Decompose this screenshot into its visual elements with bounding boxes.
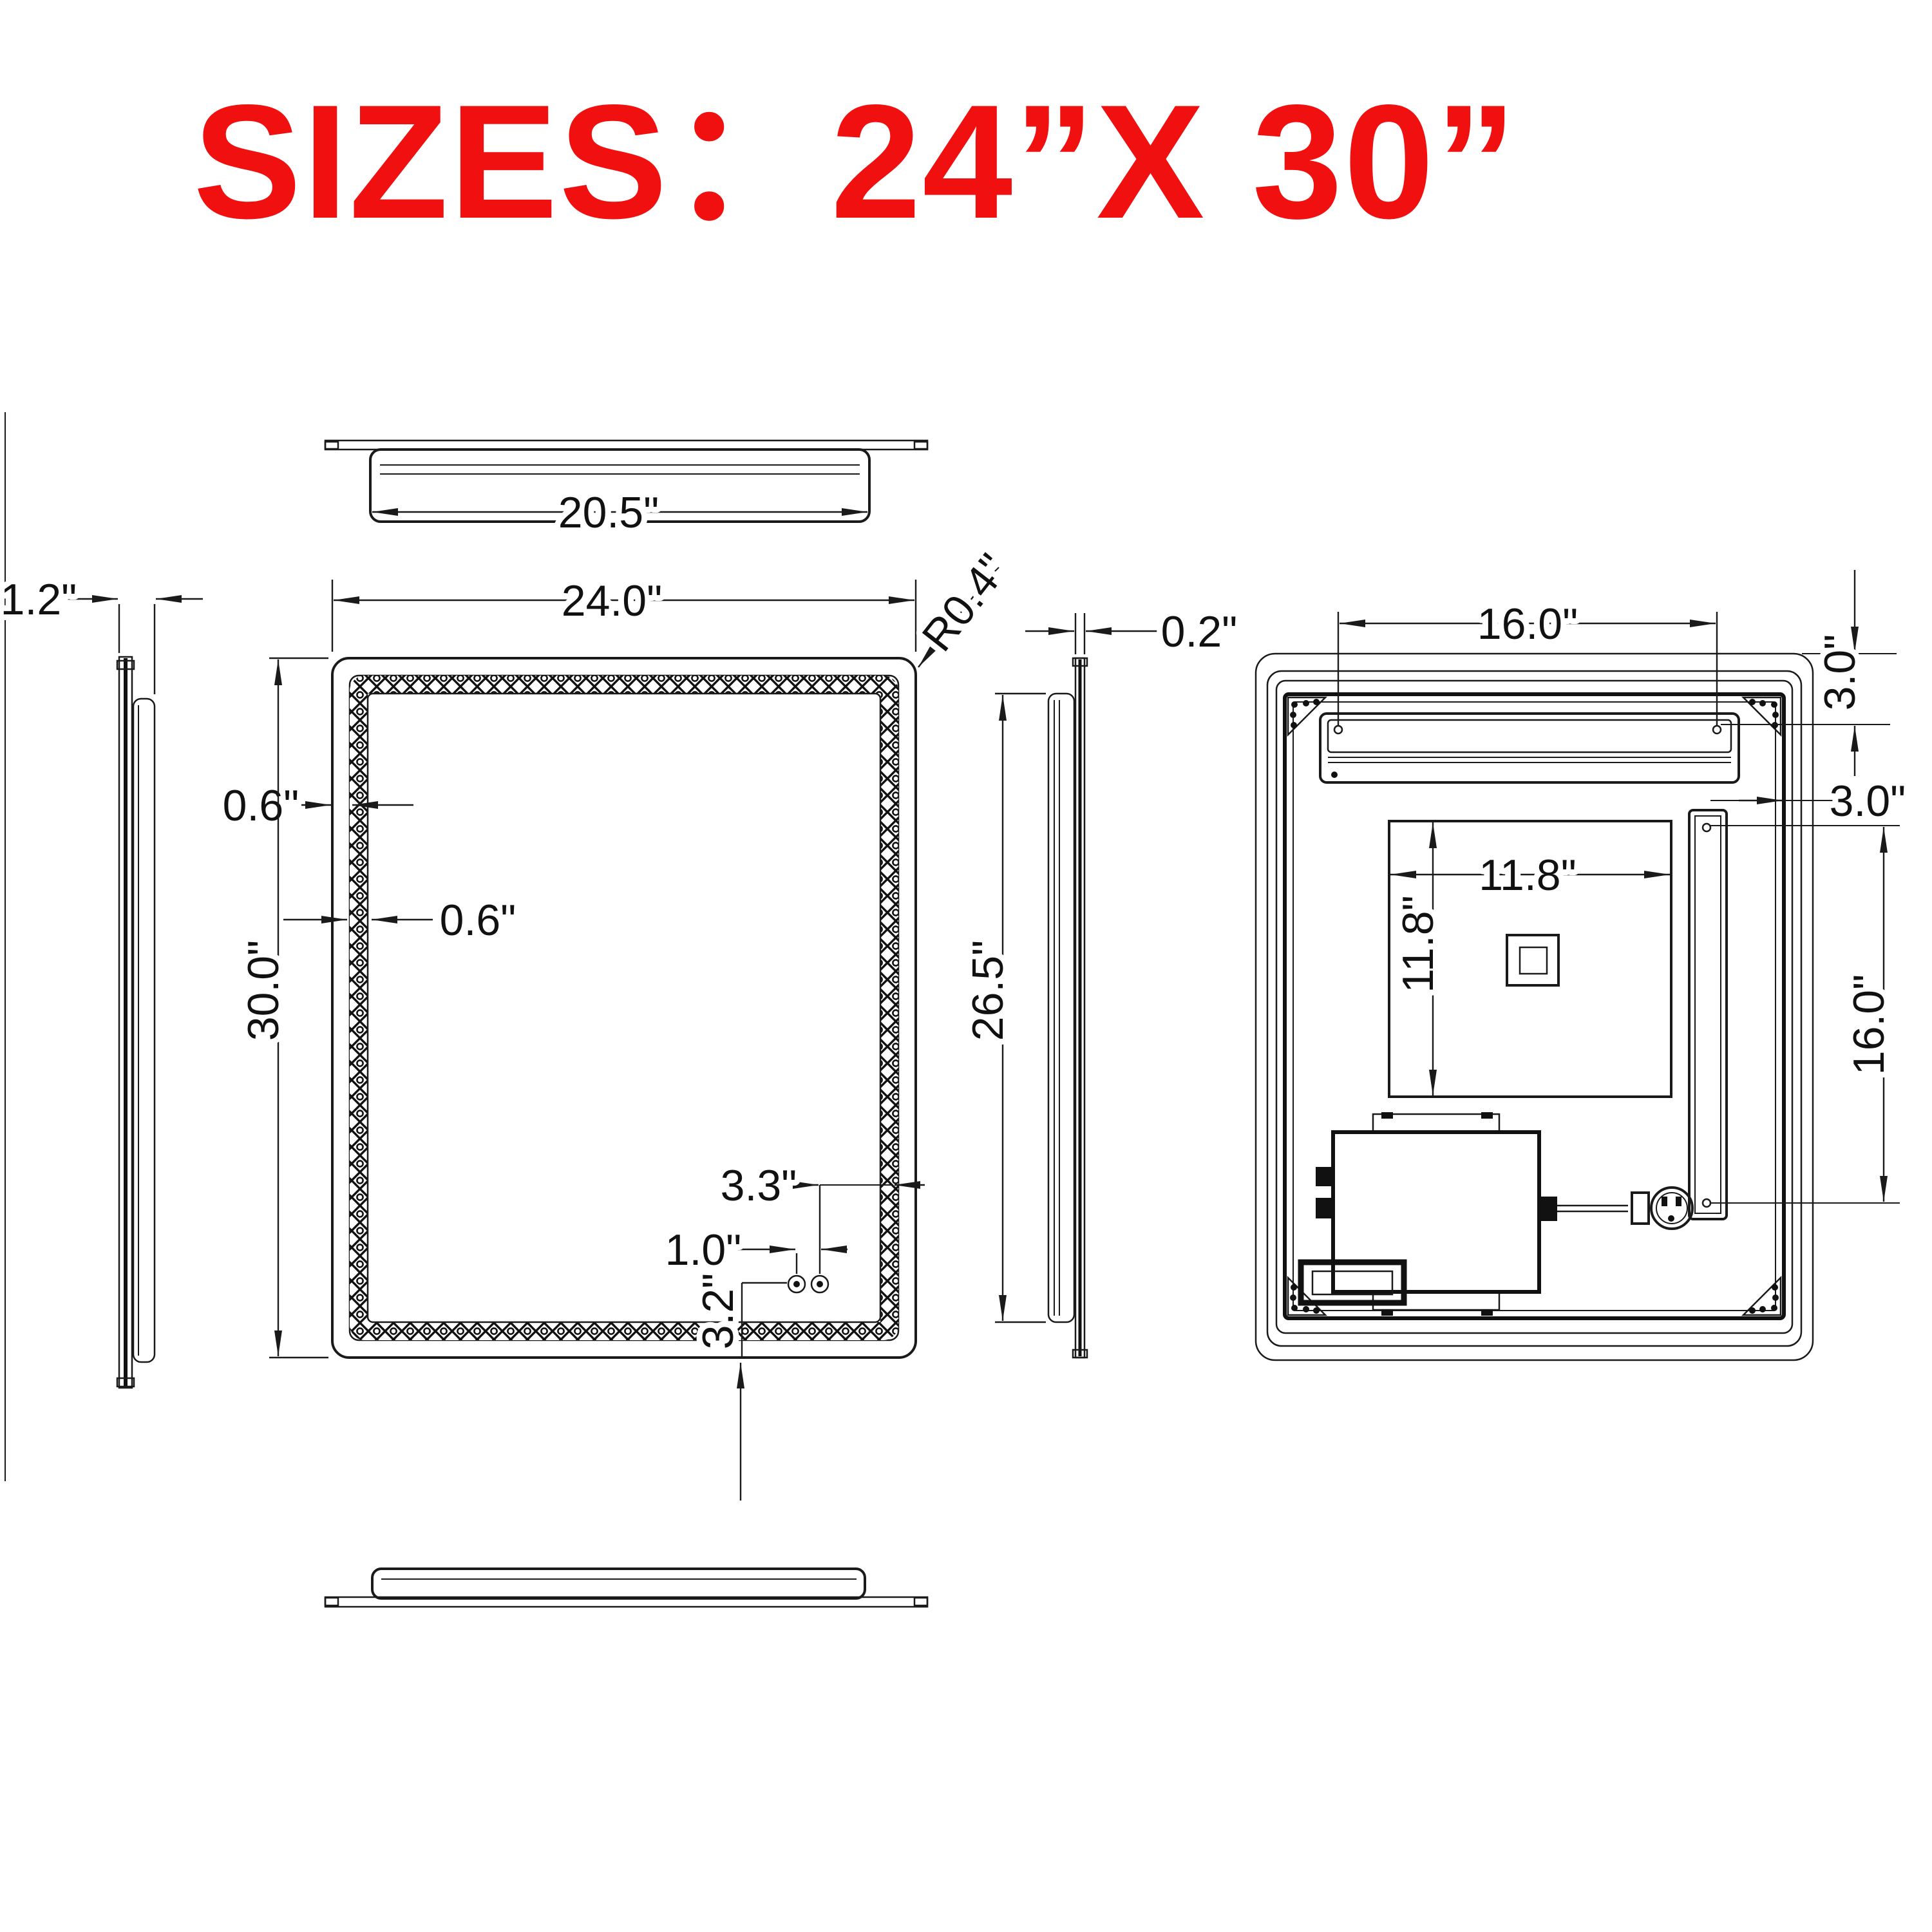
back-view: 16.0" 3.0" 3.0" 16.0" 11.8" 11.8"	[1256, 570, 1906, 1360]
dim-hanger-side-offset: 3.0"	[1830, 777, 1906, 826]
dim-top-width: 20.5"	[558, 488, 659, 537]
dim-button-offset-bottom: 3.2"	[694, 1273, 743, 1350]
middle-side-view: 0.2" 26.5"	[963, 607, 1237, 1358]
label-plate	[1301, 1262, 1404, 1303]
led-driver-box	[1316, 1112, 1557, 1316]
dim-hanger-height: 16.0"	[1844, 974, 1893, 1075]
dim-button-offset-right: 3.3"	[721, 1161, 797, 1210]
right-hanger-bracket	[1689, 810, 1727, 1219]
bottom-view	[325, 1569, 927, 1607]
junction-box	[1507, 935, 1558, 985]
corner-gussets	[1288, 697, 1781, 1315]
dim-side-depth: 1.2"	[1, 575, 77, 624]
dim-led-band-width: 0.6"	[440, 896, 516, 945]
dim-hanger-top-offset: 3.0"	[1815, 634, 1864, 711]
power-plug	[1557, 1188, 1692, 1229]
dim-backbox-height: 11.8"	[1394, 895, 1443, 992]
title-label: SIZES：	[193, 71, 832, 252]
title-size-value: 24”X 30”	[831, 71, 1518, 252]
left-side-view: 1.2"	[1, 575, 203, 1388]
dim-corner-radius: R0.4"	[913, 545, 1018, 660]
top-view: 20.5"	[325, 440, 927, 537]
dim-backbox-width: 11.8"	[1479, 851, 1576, 900]
dim-front-width: 24.0"	[562, 576, 663, 625]
dim-hanger-span: 16.0"	[1477, 600, 1578, 649]
dim-button-spacing: 1.0"	[665, 1226, 742, 1274]
title: SIZES： 24”X 30”	[193, 71, 1518, 252]
drawing-svg: SIZES： 24”X 30” 20.5" 1.2"	[0, 0, 1932, 1932]
dim-edge-to-led-gap: 0.6"	[223, 781, 299, 830]
dim-glass-thickness: 0.2"	[1161, 607, 1238, 656]
front-view: 24.0" R0.4" 0.6" 0.6" 30.0" 3.3" 1.0"	[223, 545, 1018, 1501]
dim-side-frame-height: 26.5"	[963, 940, 1012, 1041]
top-hanger-bar	[1320, 714, 1739, 782]
dim-front-height: 30.0"	[239, 940, 288, 1041]
mirror-dimension-drawing: SIZES： 24”X 30” 20.5" 1.2"	[0, 0, 1932, 1932]
